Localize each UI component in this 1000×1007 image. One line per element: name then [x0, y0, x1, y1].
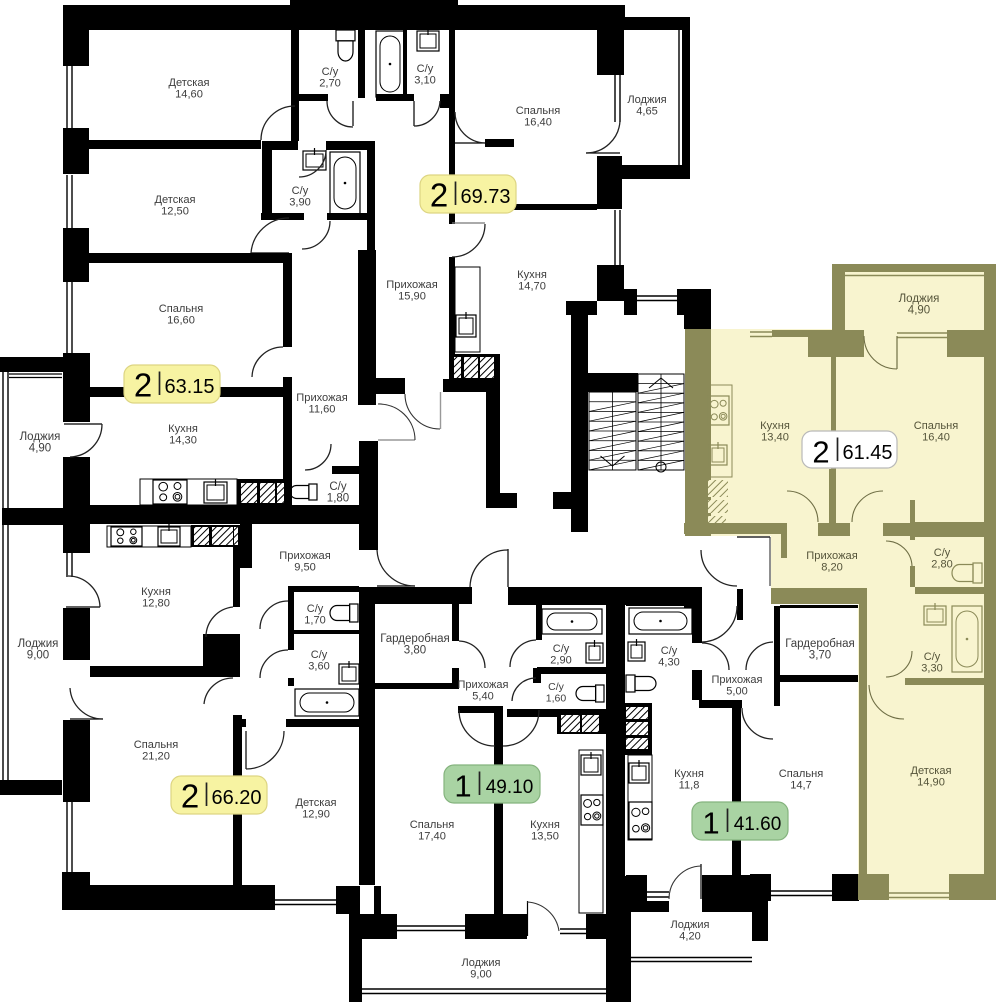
svg-text:1,70: 1,70	[304, 614, 325, 626]
svg-text:2: 2	[812, 435, 829, 470]
svg-text:С/у: С/у	[661, 645, 678, 657]
svg-text:Спальня: Спальня	[134, 739, 179, 751]
svg-text:2: 2	[181, 778, 199, 815]
svg-text:4,65: 4,65	[636, 105, 658, 117]
svg-text:2,70: 2,70	[319, 77, 341, 89]
svg-text:С/у: С/у	[329, 481, 347, 493]
svg-text:Кухня: Кухня	[168, 423, 198, 435]
svg-text:4,20: 4,20	[679, 930, 700, 942]
svg-text:2: 2	[430, 177, 448, 214]
svg-text:16,40: 16,40	[922, 431, 950, 443]
svg-text:14,70: 14,70	[518, 280, 546, 292]
svg-text:16,60: 16,60	[167, 314, 195, 326]
svg-text:12,90: 12,90	[302, 808, 330, 820]
svg-text:49.10: 49.10	[486, 777, 534, 798]
svg-text:Лоджия: Лоджия	[671, 919, 710, 931]
svg-text:Кухня: Кухня	[674, 768, 704, 780]
svg-text:5,00: 5,00	[726, 685, 747, 697]
svg-text:66.20: 66.20	[211, 787, 261, 809]
svg-text:3,30: 3,30	[921, 662, 942, 674]
svg-text:Спальня: Спальня	[410, 819, 455, 831]
svg-text:Прихожая: Прихожая	[386, 279, 437, 291]
svg-text:Лоджия: Лоджия	[18, 638, 59, 650]
svg-text:3,80: 3,80	[404, 644, 426, 656]
svg-text:4,30: 4,30	[658, 656, 679, 668]
svg-text:1: 1	[454, 769, 471, 804]
svg-text:14,90: 14,90	[917, 776, 945, 788]
svg-text:9,00: 9,00	[27, 649, 49, 661]
svg-text:Детская: Детская	[154, 194, 195, 206]
svg-text:Прихожая: Прихожая	[806, 550, 857, 562]
svg-text:Прихожая: Прихожая	[712, 674, 763, 686]
svg-text:13,50: 13,50	[531, 830, 559, 842]
svg-text:С/у: С/у	[924, 651, 941, 663]
svg-text:Лоджия: Лоджия	[627, 94, 666, 106]
svg-text:63.15: 63.15	[164, 376, 214, 398]
svg-text:С/у: С/у	[307, 603, 324, 615]
svg-text:3,10: 3,10	[414, 74, 436, 86]
svg-text:41.60: 41.60	[734, 814, 782, 835]
svg-text:21,20: 21,20	[142, 750, 170, 762]
svg-text:13,40: 13,40	[761, 431, 789, 443]
svg-text:14,60: 14,60	[175, 88, 203, 100]
svg-text:Спальня: Спальня	[914, 420, 959, 432]
svg-text:17,40: 17,40	[418, 830, 446, 842]
svg-text:1,80: 1,80	[327, 492, 349, 504]
svg-text:3,90: 3,90	[289, 196, 311, 208]
svg-text:5,40: 5,40	[472, 690, 493, 702]
svg-text:Гардеробная: Гардеробная	[380, 633, 450, 645]
svg-text:61.45: 61.45	[842, 442, 892, 464]
svg-text:Гардеробная: Гардеробная	[785, 638, 855, 650]
svg-text:12,80: 12,80	[142, 597, 170, 609]
svg-text:С/у: С/у	[322, 66, 339, 78]
svg-text:С/у: С/у	[417, 63, 434, 75]
svg-text:С/у: С/у	[292, 185, 309, 197]
svg-text:11,8: 11,8	[679, 779, 700, 791]
svg-text:14,7: 14,7	[790, 779, 812, 791]
svg-text:С/у: С/у	[934, 547, 951, 559]
svg-text:2,80: 2,80	[931, 558, 952, 570]
svg-text:Спальня: Спальня	[779, 768, 824, 780]
svg-text:Детская: Детская	[910, 765, 951, 777]
svg-text:2,90: 2,90	[550, 654, 571, 666]
svg-text:15,90: 15,90	[398, 290, 426, 302]
svg-text:2: 2	[134, 367, 152, 404]
svg-text:Кухня: Кухня	[517, 269, 547, 281]
svg-text:1: 1	[702, 806, 719, 841]
svg-text:4,90: 4,90	[908, 304, 930, 316]
svg-text:Лоджия: Лоджия	[899, 293, 940, 305]
svg-text:Кухня: Кухня	[530, 819, 560, 831]
svg-text:Спальня: Спальня	[516, 105, 561, 117]
svg-text:Детская: Детская	[295, 797, 336, 809]
svg-text:Лоджия: Лоджия	[462, 957, 501, 969]
svg-text:4,90: 4,90	[29, 442, 51, 454]
svg-text:1,60: 1,60	[546, 692, 567, 704]
svg-text:Детская: Детская	[168, 77, 209, 89]
svg-text:69.73: 69.73	[460, 186, 510, 208]
svg-text:Кухня: Кухня	[760, 420, 790, 432]
svg-text:С/у: С/у	[548, 681, 565, 693]
svg-text:11,60: 11,60	[309, 403, 336, 415]
svg-text:С/у: С/у	[553, 643, 570, 655]
svg-text:3,70: 3,70	[809, 649, 831, 661]
svg-text:16,40: 16,40	[524, 116, 552, 128]
svg-text:8,20: 8,20	[821, 561, 843, 573]
svg-text:Лоджия: Лоджия	[20, 431, 61, 443]
svg-text:9,50: 9,50	[294, 561, 316, 573]
svg-text:9,00: 9,00	[470, 968, 491, 980]
svg-text:3,60: 3,60	[308, 660, 329, 672]
svg-text:Прихожая: Прихожая	[279, 550, 330, 562]
svg-text:Спальня: Спальня	[159, 303, 204, 315]
svg-text:Кухня: Кухня	[141, 586, 171, 598]
svg-text:С/у: С/у	[311, 649, 328, 661]
svg-text:Прихожая: Прихожая	[458, 679, 509, 691]
svg-text:14,30: 14,30	[169, 434, 197, 446]
svg-text:Прихожая: Прихожая	[296, 392, 347, 404]
svg-text:12,50: 12,50	[161, 205, 189, 217]
